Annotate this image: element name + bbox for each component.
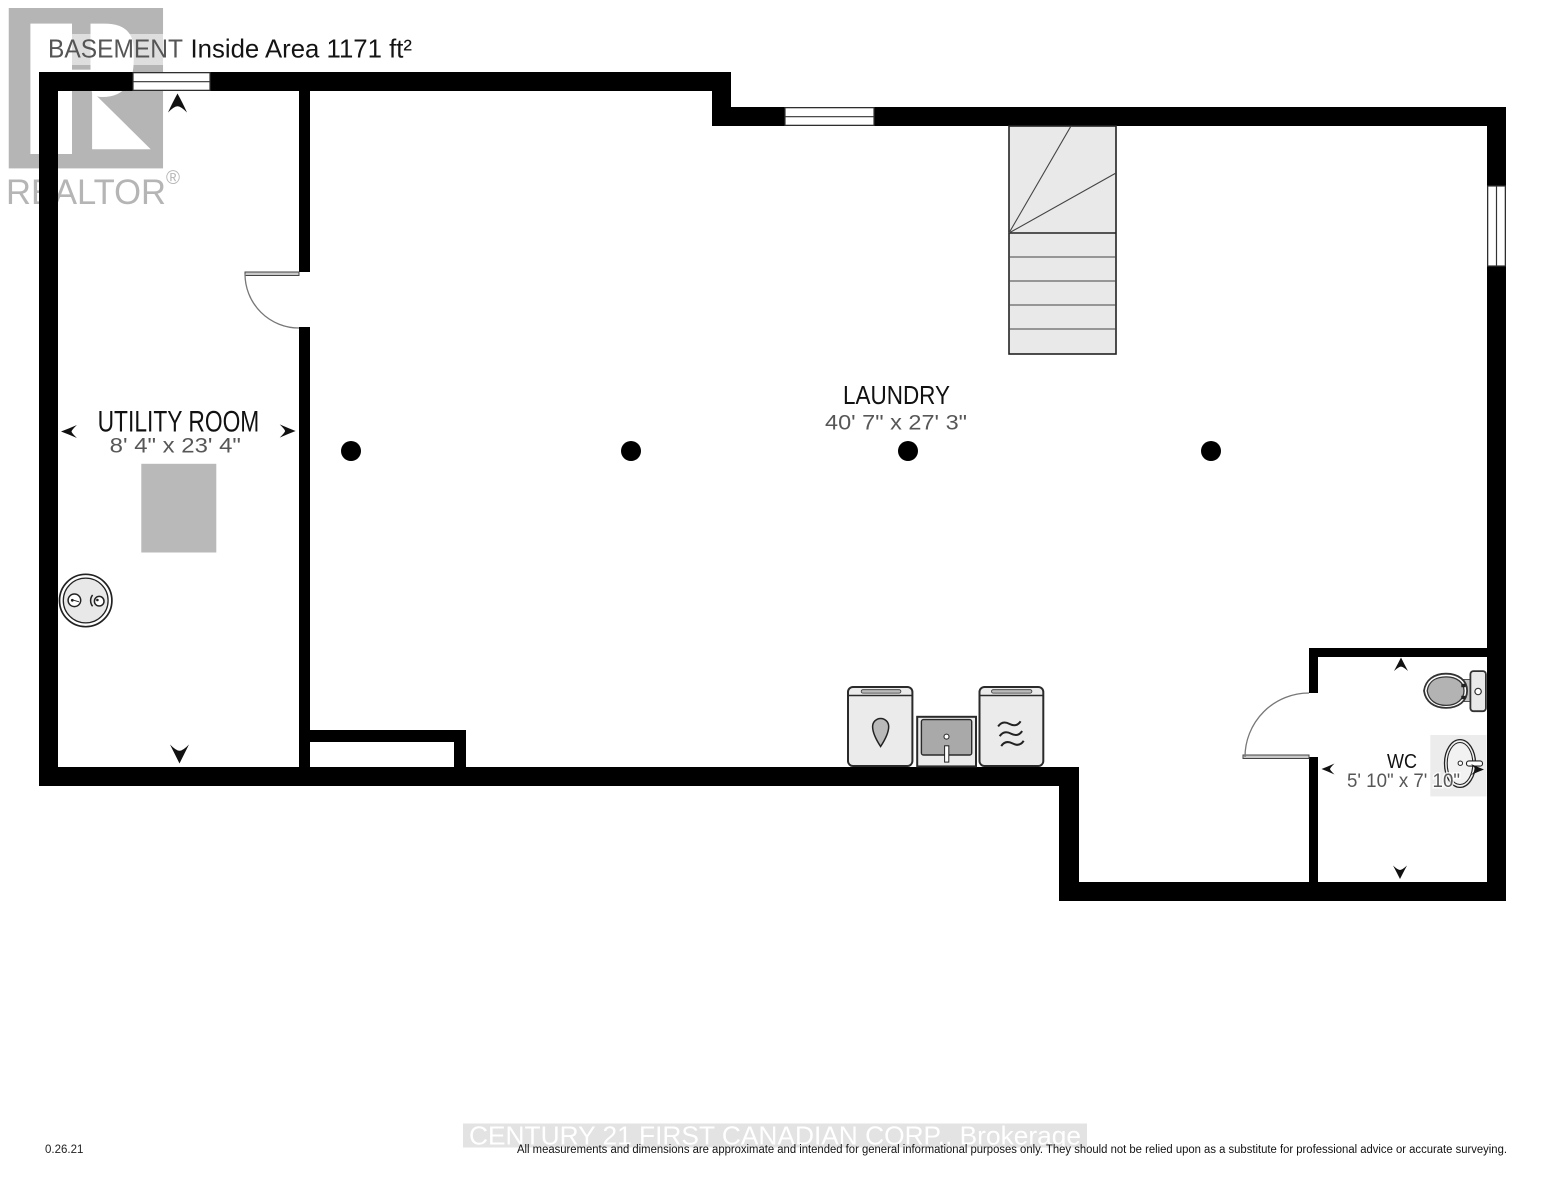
svg-text:®: ®	[166, 168, 180, 189]
svg-text:40' 7" x 27' 3": 40' 7" x 27' 3"	[825, 411, 967, 435]
svg-text:WC: WC	[1387, 751, 1417, 773]
svg-text:All measurements and dimension: All measurements and dimensions are appr…	[517, 1144, 1507, 1156]
svg-text:BASEMENTInside Area 1171 ft²: BASEMENTInside Area 1171 ft²	[48, 34, 412, 64]
svg-text:5' 10" x 7' 10": 5' 10" x 7' 10"	[1347, 771, 1460, 792]
svg-text:8' 4" x 23' 4": 8' 4" x 23' 4"	[110, 434, 241, 458]
svg-text:LAUNDRY: LAUNDRY	[843, 380, 950, 410]
svg-text:0.26.21: 0.26.21	[45, 1144, 83, 1156]
svg-text:REALTOR: REALTOR	[6, 173, 166, 212]
